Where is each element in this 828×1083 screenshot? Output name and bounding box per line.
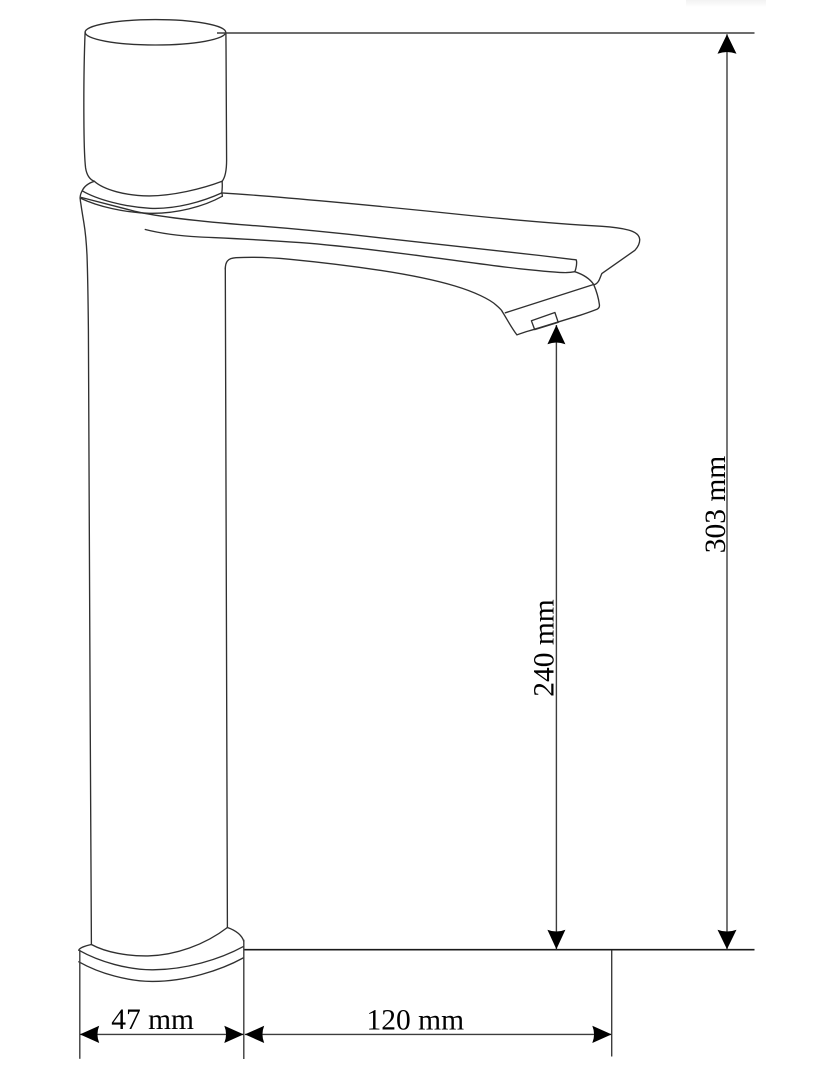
svg-text:303 mm: 303 mm — [700, 456, 732, 554]
svg-text:240 mm: 240 mm — [529, 599, 561, 697]
svg-text:120 mm: 120 mm — [367, 1005, 465, 1037]
svg-text:47 mm: 47 mm — [111, 1004, 194, 1036]
